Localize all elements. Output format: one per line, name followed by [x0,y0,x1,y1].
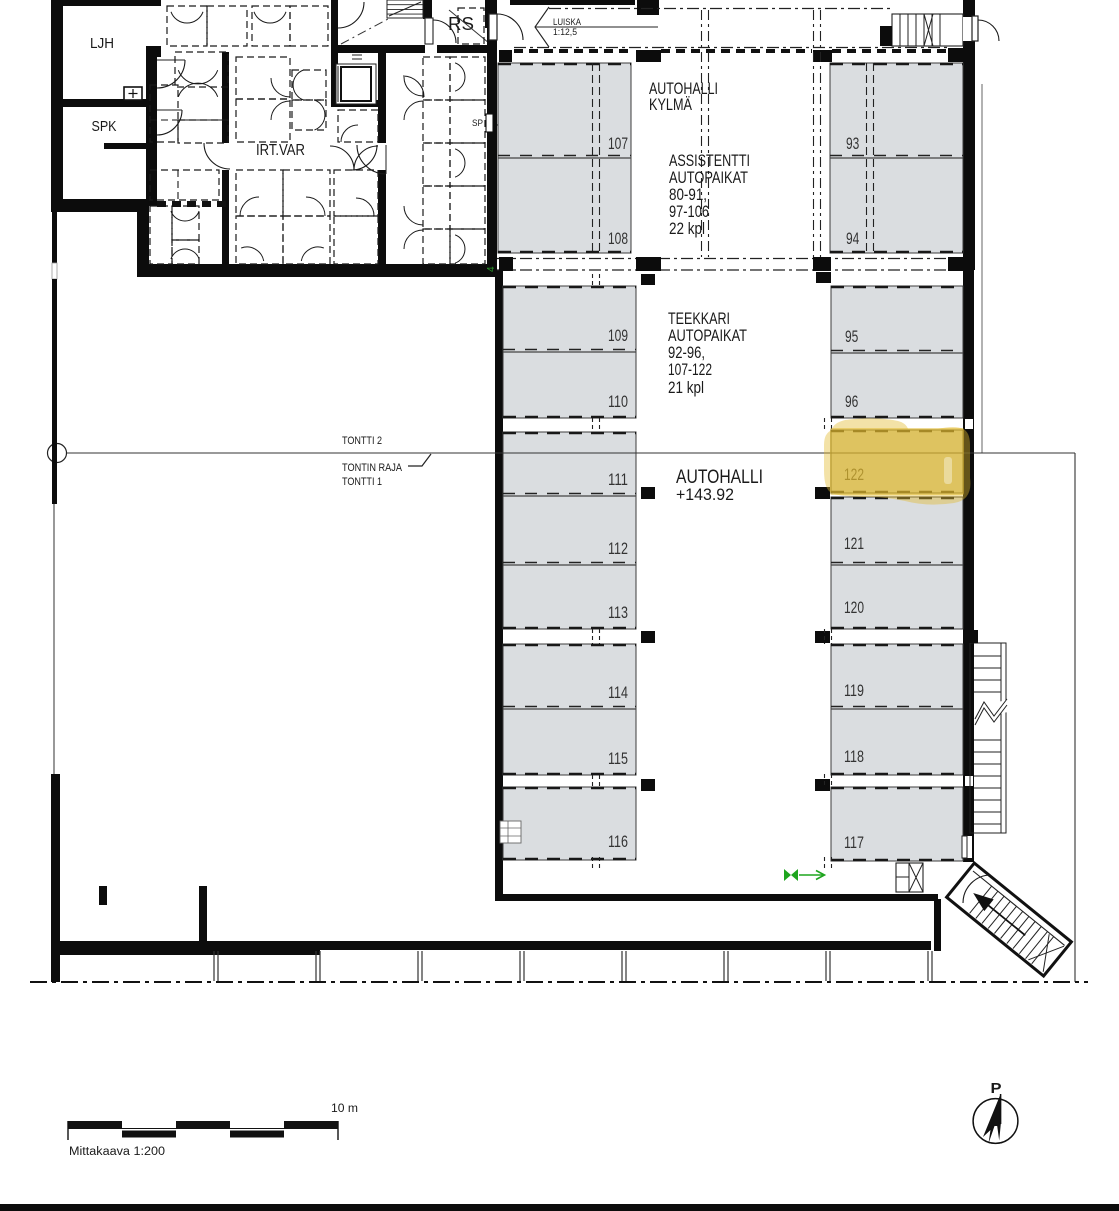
svg-text:92-96,: 92-96, [668,344,705,362]
svg-text:96: 96 [845,392,858,411]
svg-text:ASSISTENTTI: ASSISTENTTI [669,152,750,170]
svg-text:121: 121 [844,534,864,553]
svg-text:21 kpl: 21 kpl [668,379,704,397]
svg-text:1:12,5: 1:12,5 [553,27,577,38]
svg-text:10 m: 10 m [331,1103,358,1115]
svg-text:22 kpl: 22 kpl [669,220,705,238]
svg-text:AUTOPAIKAT: AUTOPAIKAT [669,169,748,187]
svg-text:116: 116 [608,832,628,851]
svg-text:115: 115 [608,749,628,768]
svg-text:TONTIN RAJA: TONTIN RAJA [342,462,403,474]
svg-text:113: 113 [608,603,628,622]
svg-text:+143.92: +143.92 [676,485,734,504]
svg-text:P: P [991,1080,1002,1097]
svg-text:97-106: 97-106 [669,203,709,221]
svg-text:107: 107 [608,134,628,153]
svg-text:114: 114 [608,683,628,702]
svg-text:93: 93 [846,134,859,153]
svg-text:TEEKKARI: TEEKKARI [668,310,730,328]
svg-text:120: 120 [844,598,864,617]
svg-text:118: 118 [844,747,864,766]
svg-text:111: 111 [608,470,628,489]
svg-text:LJH: LJH [90,35,114,52]
svg-text:107-122: 107-122 [668,361,712,379]
svg-text:RS: RS [448,14,474,34]
svg-text:SPK: SPK [92,118,117,135]
svg-text:Mittakaava 1:200: Mittakaava 1:200 [69,1146,165,1158]
svg-text:AUTOPAIKAT: AUTOPAIKAT [668,327,747,345]
svg-text:4: 4 [486,266,497,272]
svg-text:119: 119 [844,681,864,700]
svg-text:117: 117 [844,833,864,852]
svg-text:TONTTI 1: TONTTI 1 [342,476,382,488]
svg-text:109: 109 [608,326,628,345]
svg-text:TONTTI 2: TONTTI 2 [342,435,382,447]
svg-text:112: 112 [608,539,628,558]
svg-text:SP: SP [472,118,483,128]
svg-text:80-91,: 80-91, [669,186,707,204]
svg-text:108: 108 [608,229,628,248]
svg-text:110: 110 [608,392,628,411]
svg-text:KYLMÄ: KYLMÄ [649,96,692,114]
svg-text:IRT.VAR: IRT.VAR [256,142,305,159]
svg-text:94: 94 [846,229,859,248]
svg-text:95: 95 [845,327,858,346]
